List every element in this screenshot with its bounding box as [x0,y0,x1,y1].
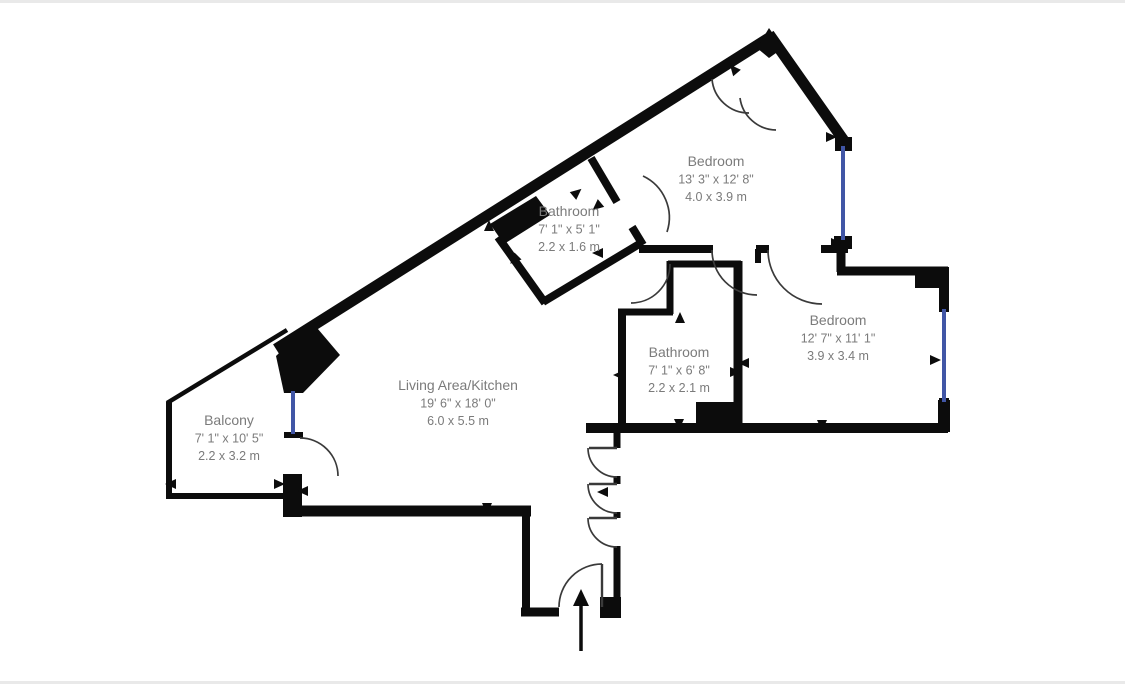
wall [769,34,847,145]
threshold-arrow-icon [570,185,585,200]
door-swing-arc [588,518,617,547]
room-dimensions-metric: 6.0 x 5.5 m [427,414,489,428]
wall-block [283,474,302,517]
room-name-label: Living Area/Kitchen [398,377,518,393]
door-swing-arc [740,98,776,130]
door-swing-arc [588,484,617,513]
threshold-arrow-icon [597,487,608,497]
wall [167,330,287,403]
threshold-arrow-icon [930,355,941,365]
room-name-label: Bathroom [649,344,710,360]
room-dimensions-metric: 2.2 x 1.6 m [538,240,600,254]
room-dimensions-metric: 4.0 x 3.9 m [685,190,747,204]
wall-block [696,402,742,428]
room-name-label: Bathroom [539,203,600,219]
room-dimensions-imperial: 7' 1" x 5' 1" [538,223,600,237]
door-swing-arc [631,264,670,303]
door-swing-arc [768,250,822,304]
door-swing-arc [300,438,338,476]
entrance-arrow-icon [573,589,589,606]
room-name-label: Balcony [204,412,254,428]
room-dimensions-imperial: 12' 7" x 11' 1" [801,332,876,346]
room-dimensions-imperial: 13' 3" x 12' 8" [678,173,754,187]
room-name-label: Bedroom [810,312,867,328]
door-swing-arc [643,176,669,232]
wall-block [915,267,949,288]
room-dimensions-metric: 2.2 x 2.1 m [648,381,710,395]
room-dimensions-imperial: 19' 6" x 18' 0" [420,397,496,411]
room-name-label: Bedroom [688,153,745,169]
wall [591,158,617,202]
floor-plan-page: Bedroom13' 3" x 12' 8"4.0 x 3.9 mBathroo… [0,0,1125,684]
floor-plan-canvas: Bedroom13' 3" x 12' 8"4.0 x 3.9 mBathroo… [0,0,1125,684]
threshold-arrow-icon [675,312,685,323]
room-dimensions-imperial: 7' 1" x 10' 5" [195,432,264,446]
wall-block [938,400,950,432]
door-swing-arc [588,448,617,477]
room-dimensions-imperial: 7' 1" x 6' 8" [648,364,710,378]
room-dimensions-metric: 2.2 x 3.2 m [198,449,260,463]
room-dimensions-metric: 3.9 x 3.4 m [807,349,869,363]
